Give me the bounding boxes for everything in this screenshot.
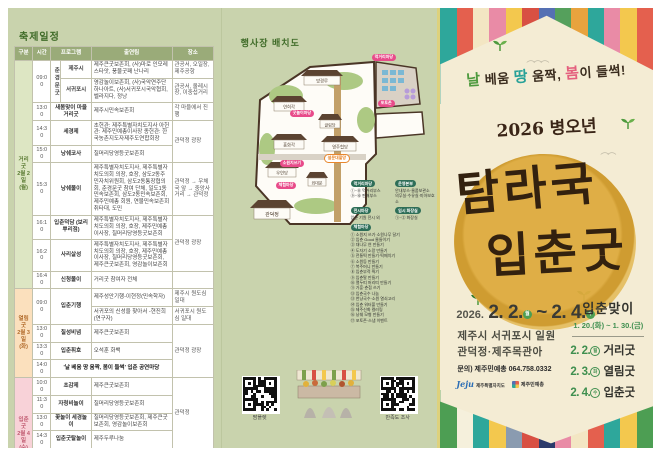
- schedule-cell: 오석훈 화백: [91, 342, 172, 360]
- schedule-cell: 춘경문굿: [51, 60, 61, 102]
- festival-day-row: 2. 3.화 열림굿: [568, 363, 648, 379]
- building: 망경루: [301, 70, 343, 85]
- schedule-title: 축제일정: [19, 28, 60, 43]
- slogan-word: 이 들썩!: [579, 62, 626, 80]
- schedule-cell: 13:30: [33, 342, 51, 360]
- legend-section-title: 전시마당: [351, 207, 372, 214]
- qr-code-survey: [380, 376, 418, 414]
- legend-item: ⑨~⑩ 판매부스: [351, 193, 393, 198]
- svg-text:외대문: 외대문: [311, 179, 322, 185]
- qr-code-pamphlet: [242, 376, 280, 414]
- jeju-province-logo: Jeju제주특별자치도: [456, 379, 505, 389]
- cover-venue-line1: 제주시 서귀포시 일원: [457, 328, 555, 343]
- schedule-cell: 제주시: [61, 60, 91, 78]
- festival-day-row: 2. 4.수 입춘굿: [568, 384, 648, 400]
- brochure: 축제일정 구분 시간 프로그램 출연팀 장소 거리굿 2월 2일 (월)09:0…: [8, 8, 653, 448]
- schedule-header-row: 구분 시간 프로그램 출연팀 장소: [15, 47, 214, 61]
- schedule-cell: 각 마을에서 진행: [172, 103, 213, 121]
- schedule-cell: 서귀포의 신성을 찾아서 -현진희(연구자): [91, 307, 172, 325]
- map-label-food: 먹거리마당: [372, 54, 396, 61]
- panel-schedule: 축제일정 구분 시간 프로그램 출연팀 장소 거리굿 2월 2일 (월)09:0…: [8, 8, 221, 448]
- cover-logos: Jeju제주특별자치도 제주민예총: [456, 379, 544, 389]
- schedule-cell: '날 베움 땅 움짝, 봄이 들썩' 입춘 공연마당: [51, 360, 172, 378]
- legend-item: ①~② 화장실: [395, 215, 437, 220]
- schedule-cell: 관덕정 → 우체국 앞 → 중앙사거리 → 관덕정: [172, 163, 213, 215]
- logo-mark: [512, 381, 519, 388]
- map-label-gut-yard: 굿놀이마당: [290, 110, 314, 117]
- schedule-cell: 관공서, 올레시장, 이중섭거리: [172, 78, 213, 103]
- schedule-row: 입춘굿 2월 4일 (수)10:00초감제제주큰굿보존회관덕정: [15, 378, 214, 396]
- building: 연희각: [271, 96, 307, 111]
- legend-section-title: 운영본부: [395, 180, 416, 187]
- schedule-cell: 제주큰굿보존회: [91, 324, 172, 342]
- svg-text:우연당: 우연당: [276, 170, 288, 177]
- building: 관덕정: [250, 200, 294, 219]
- cover-title-line2: 입춘굿: [485, 210, 630, 286]
- legend-item: ⑰ 포토존·스냅 이벤트: [351, 318, 437, 323]
- cover-venue-line2: 관덕정·제주목관아: [457, 344, 542, 359]
- qr-pattern: [381, 377, 415, 411]
- grass: [294, 198, 338, 214]
- schedule-cell: 관덕정 광장: [172, 215, 213, 271]
- schedule-cell: 11:30: [33, 395, 51, 413]
- legend-section: 체험마당① 소원지 쓰기·소원나무 달기② 입춘 Good 물들이기③ 대나무 …: [351, 224, 437, 324]
- qr-pattern: [243, 377, 277, 411]
- schedule-cell: 16:40: [33, 271, 51, 289]
- pre-festival-date: 1. 20.(화) ~ 1. 30.(금): [568, 320, 648, 331]
- schedule-group-cell: 거리굿 2월 2일 (월): [15, 60, 33, 289]
- svg-text:영주협당: 영주협당: [332, 144, 348, 151]
- schedule-cell: 16:10: [33, 215, 51, 240]
- schedule-cell: 입춘휘호: [51, 342, 91, 360]
- building: 영주협당: [321, 136, 359, 151]
- schedule-row: 13:00칠성비념제주큰굿보존회관덕정 광장: [15, 324, 214, 342]
- schedule-cell: 초감제: [51, 378, 91, 396]
- schedule-row: 15:30낭쉐몰이제주특별자치도지사, 제주특별자치도의회 의장, 호장, 삼도…: [15, 163, 214, 215]
- grass: [357, 107, 375, 133]
- schedule-cell: 15:30: [33, 163, 51, 215]
- schedule-cell: 서귀포시: [61, 78, 91, 103]
- schedule-cell: 09:00: [33, 60, 51, 102]
- col-cast: 출연팀: [91, 47, 172, 61]
- schedule-cell: 관공서, 오일장, 제주공항: [172, 60, 213, 78]
- legend-section-title: 체험마당: [351, 224, 372, 231]
- schedule-cell: 14:30: [33, 431, 51, 448]
- qr-label-pamphlet: 팜플렛: [230, 414, 290, 421]
- col-place: 장소: [172, 47, 213, 61]
- cover-year: 2026 병오년: [440, 108, 653, 144]
- schedule-row: 16:40신청몰이거리굿 참여자 전체: [15, 271, 214, 289]
- schedule-group-cell: 열림굿 2월 3일 (화): [15, 289, 33, 378]
- legend-section-title: 임시 화장실: [395, 207, 421, 214]
- schedule-table: 구분 시간 프로그램 출연팀 장소 거리굿 2월 2일 (월)09:00춘경문굿…: [14, 46, 214, 448]
- schedule-cell: 제주시 원도심일대: [172, 289, 213, 307]
- legend-section: 전시마당입춘 기원 전시 외: [351, 207, 393, 220]
- schedule-cell: 칠머리당영등굿보존회: [91, 395, 172, 413]
- slogan-word: 베움: [481, 70, 515, 87]
- panel-cover: ︵︵︵ ︵︵ 날 베움 땅 움짝, 봄이 들썩! 2026 병오년 탐라국 입춘…: [440, 8, 653, 448]
- schedule-cell: 초헌관: 제주특별자치도지사 아헌관: 제주민예총이사장 종헌관: 한국농촌지도…: [91, 121, 172, 146]
- cover-program-summary: 입춘맞이 1. 20.(화) ~ 1. 30.(금) 2. 2.월 거리굿2. …: [568, 298, 648, 400]
- schedule-cell: 관덕정 광장: [172, 121, 213, 163]
- map-label-experience: 체험마당: [276, 182, 297, 189]
- festival-day-row: 2. 2.월 거리굿: [568, 342, 648, 358]
- legend-item: 입춘 기원 전시 외: [351, 215, 393, 220]
- day-circle: 월: [523, 310, 532, 319]
- map-annex-area: [376, 112, 424, 138]
- svg-text:귤림당: 귤림당: [324, 121, 335, 127]
- slogan-word: 움짝,: [528, 67, 566, 85]
- schedule-cell: 새봄맞이 마을거리굿: [51, 103, 91, 121]
- map-label-photozone: 포토존: [378, 100, 395, 107]
- legend-section: 운영본부안내부스·물품보관소의무실·수유실·미아보호소: [395, 180, 437, 204]
- sprout-icon: [492, 38, 508, 52]
- legend-section: 먹거리마당①~⑧ 먹거리부스⑨~⑩ 판매부스: [351, 180, 393, 204]
- building: 홍화각: [271, 134, 307, 149]
- svg-text:관덕정: 관덕정: [265, 211, 279, 218]
- schedule-row: 16:10입춘덕담 (보리뿌리점)제주특별자치도지사, 제주특별자치도의회 의장…: [15, 215, 214, 240]
- cover-contact: 문의) 제주민예총 064.758.0332: [457, 364, 551, 374]
- schedule-cell: 자청비놀이: [51, 395, 91, 413]
- schedule-cell: 16:20: [33, 240, 51, 272]
- building: 귤림당: [318, 114, 342, 128]
- schedule-cell: [172, 271, 213, 289]
- schedule-cell: 15:00: [33, 145, 51, 163]
- schedule-cell: 칠머리당영등굿보존회, 제주큰굿보존회, 영감놀이보존회: [91, 413, 172, 431]
- schedule-group-cell: 입춘굿 2월 4일 (수): [15, 378, 33, 448]
- schedule-cell: 관덕정 광장: [172, 324, 213, 377]
- schedule-row: 13:00새봄맞이 마을거리굿제주시민속보존회각 마을에서 진행: [15, 103, 214, 121]
- schedule-row: 열림굿 2월 3일 (화)09:00입춘기행제주성안기행-이현정(민속학자)제주…: [15, 289, 214, 307]
- schedule-cell: 제주특별자치도지사, 제주특별자치도의회 의장, 호장, 삼도2동주민자치위원회…: [91, 163, 172, 215]
- schedule-cell: 제주큰굿보존회: [91, 378, 172, 396]
- schedule-cell: 세경제: [51, 121, 91, 146]
- schedule-cell: 낭쉐코사: [51, 145, 91, 163]
- schedule-cell: 제주성안기행-이현정(민속학자): [91, 289, 172, 307]
- schedule-cell: 꽃놀이 세경놀이: [51, 413, 91, 431]
- schedule-cell: 제주두루나눔: [91, 431, 172, 448]
- schedule-cell: 14:00: [33, 360, 51, 378]
- legend-item: 의무실·수유실·미아보호소: [395, 193, 437, 204]
- schedule-cell: 입춘기행: [51, 289, 91, 325]
- legend-section: 임시 화장실①~② 화장실: [395, 207, 437, 220]
- schedule-cell: 거리굿 참여자 전체: [91, 271, 172, 289]
- schedule-cell: 입춘굿탈놀이: [51, 431, 91, 448]
- schedule-row: 거리굿 2월 2일 (월)09:00춘경문굿제주시제주큰굿보존회, (사)마로 …: [15, 60, 214, 78]
- col-group: 구분: [15, 47, 33, 61]
- divider: [572, 336, 644, 337]
- schedule-cell: 서귀포시 원도심 일대: [172, 307, 213, 325]
- minyechong-logo: 제주민예총: [512, 381, 544, 388]
- schedule-cell: 13:00: [33, 413, 51, 431]
- schedule-cell: 09:00: [33, 289, 51, 325]
- grass: [259, 133, 275, 165]
- schedule-cell: 14:30: [33, 121, 51, 146]
- date-from: 2. 2.: [488, 302, 522, 323]
- schedule-cell: 제주특별자치도지사, 제주특별자치도의회 의장, 호장, 제주민예총이사장, 칠…: [91, 240, 172, 272]
- schedule-cell: 칠성비념: [51, 324, 91, 342]
- col-time: 시간: [33, 47, 51, 61]
- legend-section-title: 먹거리마당: [351, 180, 375, 187]
- schedule-cell: 사리살성: [51, 240, 91, 272]
- map-title: 행사장 배치도: [241, 36, 300, 49]
- map-label-wish-paper: 소원지쓰기: [280, 160, 304, 167]
- altar-illustration: [296, 370, 362, 420]
- map-legend: 먹거리마당①~⑧ 먹거리부스⑨~⑩ 판매부스운영본부안내부스·물품보관소의무실·…: [351, 180, 437, 326]
- schedule-cell: 13:00: [33, 324, 51, 342]
- building: 외대문: [306, 172, 328, 186]
- schedule-cell: 관덕정: [172, 378, 213, 448]
- schedule-cell: 칠머리당영등굿보존회: [91, 145, 172, 163]
- schedule-cell: 13:00: [33, 103, 51, 121]
- cloud-icon: ︵︵: [600, 144, 614, 157]
- schedule-cell: 영감놀이보존회, (사)국악연주단 하나아트, (사)서귀포시국악협회, 벨라지…: [91, 78, 172, 103]
- schedule-cell: 제주특별자치도지사, 제주특별자치도의회 의장, 호장, 제주민예총이사장, 칠…: [91, 215, 172, 240]
- pre-festival-title: 입춘맞이: [568, 298, 648, 317]
- svg-text:망경루: 망경루: [316, 78, 328, 85]
- schedule-cell: 10:00: [33, 378, 51, 396]
- date-prefix: 2026.: [456, 309, 484, 321]
- schedule-row: 14:30세경제초헌관: 제주특별자치도지사 아헌관: 제주민예총이사장 종헌관…: [15, 121, 214, 146]
- schedule-cell: 제주큰굿보존회, (사)마로 인모레스타앗, 풍물굿패 난나리: [91, 60, 172, 78]
- schedule-cell: 신청몰이: [51, 271, 91, 289]
- map-label-seolmundae: 설문대할망: [324, 154, 350, 163]
- schedule-cell: 입춘덕담 (보리뿌리점): [51, 215, 91, 240]
- schedule-cell: 낭쉐몰이: [51, 163, 91, 215]
- qr-label-survey: 만족도 조사: [368, 414, 428, 421]
- schedule-cell: 제주시민속보존회: [91, 103, 172, 121]
- panel-venue-map: 행사장 배치도: [221, 8, 438, 448]
- svg-text:홍화각: 홍화각: [283, 142, 295, 149]
- col-program: 프로그램: [51, 47, 91, 61]
